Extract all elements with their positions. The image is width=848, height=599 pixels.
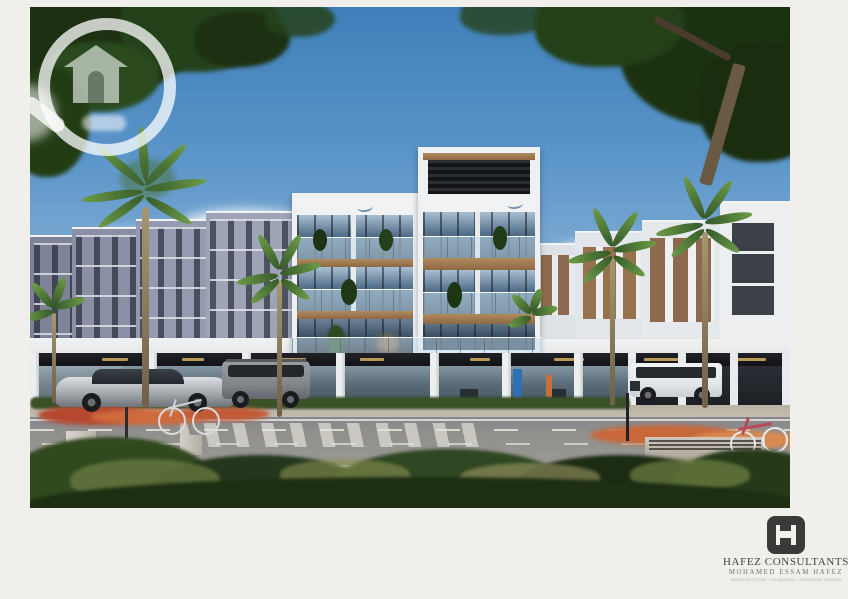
shop-sign xyxy=(470,358,490,361)
palm-trunk xyxy=(277,281,282,417)
crosswalk xyxy=(180,423,490,447)
palm-crown-haze xyxy=(120,159,175,199)
house-door xyxy=(88,71,104,103)
principal-name: MOHAMED ESSAM HAFEZ xyxy=(706,569,848,576)
rendering-photo xyxy=(30,7,790,508)
floor-windows xyxy=(423,212,535,258)
palm-tree xyxy=(80,137,210,407)
company-name: HAFEZ CONSULTANTS xyxy=(706,556,848,568)
palm-tree xyxy=(502,295,562,357)
facade-logo-icon xyxy=(507,198,524,210)
bike-wheel xyxy=(192,407,220,435)
palm-trunk xyxy=(702,232,708,408)
branding-text-block: HAFEZ CONSULTANTS MOHAMED ESSAM HAFEZ AR… xyxy=(706,556,848,582)
balcony-plant xyxy=(379,229,393,251)
shop-sign xyxy=(360,358,384,361)
balcony-glass xyxy=(423,236,535,259)
palm-frond xyxy=(30,307,54,323)
column xyxy=(782,353,790,407)
palm-tree xyxy=(235,247,325,417)
monogram-bar xyxy=(791,525,796,545)
palm-tree xyxy=(570,222,660,407)
pergola-beam xyxy=(423,153,535,160)
parapet-band xyxy=(297,197,413,215)
palm-frond xyxy=(278,276,311,303)
wood-spandrel xyxy=(423,258,535,270)
palm-frond xyxy=(703,226,741,256)
roof-pergola xyxy=(428,160,530,194)
monogram-bar xyxy=(780,531,791,538)
parapet-band xyxy=(423,194,535,212)
foliage xyxy=(265,7,335,37)
palm-frond xyxy=(590,207,616,249)
palm-tree xyxy=(30,287,90,407)
watermark-glow xyxy=(82,115,126,131)
balcony-plant xyxy=(447,282,462,308)
palm-trunk xyxy=(142,207,149,407)
palm-tree xyxy=(658,192,754,407)
shop-banner xyxy=(513,369,522,399)
balcony-posts xyxy=(423,237,535,259)
palm-frond xyxy=(507,313,533,330)
facade-logo-icon xyxy=(357,201,374,213)
hafez-logo-icon xyxy=(767,516,805,554)
balcony-plant xyxy=(493,226,507,250)
palm-frond xyxy=(612,253,647,280)
company-tagline: ARCHITECTURE • PLANNING • INTERIOR DESIG… xyxy=(706,577,848,582)
balcony-plant xyxy=(341,279,357,305)
palm-trunk xyxy=(52,313,56,403)
shop-banner xyxy=(546,375,552,397)
palm-trunk xyxy=(610,258,615,406)
